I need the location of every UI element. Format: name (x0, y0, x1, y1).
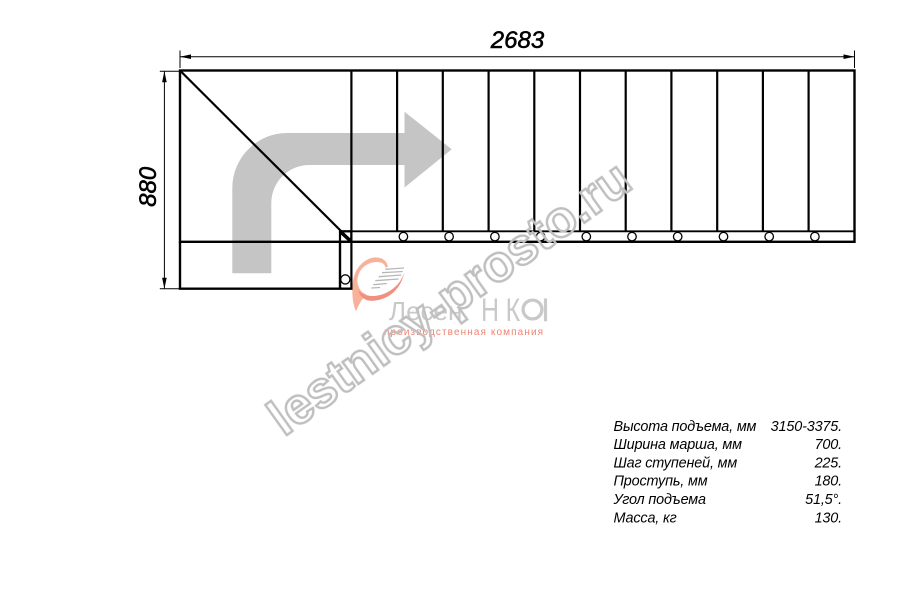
svg-text:225.: 225. (814, 455, 842, 471)
svg-text:130.: 130. (815, 510, 842, 526)
svg-text:Высота подъема, мм: Высота подъема, мм (614, 419, 757, 435)
svg-text:51,5°.: 51,5°. (805, 492, 842, 508)
svg-text:3150-3375.: 3150-3375. (771, 419, 842, 435)
svg-text:Ширина марша, мм: Ширина марша, мм (614, 437, 743, 453)
svg-text:Масса, кг: Масса, кг (614, 510, 677, 526)
svg-text:700.: 700. (815, 437, 842, 453)
svg-text:180.: 180. (815, 474, 842, 490)
svg-text:Угол подъема: Угол подъема (613, 492, 706, 508)
svg-text:2683: 2683 (490, 27, 545, 54)
svg-text:880: 880 (135, 166, 162, 207)
svg-text:lestnicy-prosto.ru: lestnicy-prosto.ru (257, 149, 641, 446)
svg-text:Проступь, мм: Проступь, мм (614, 474, 708, 490)
svg-text:Шаг ступеней, мм: Шаг ступеней, мм (614, 455, 738, 471)
